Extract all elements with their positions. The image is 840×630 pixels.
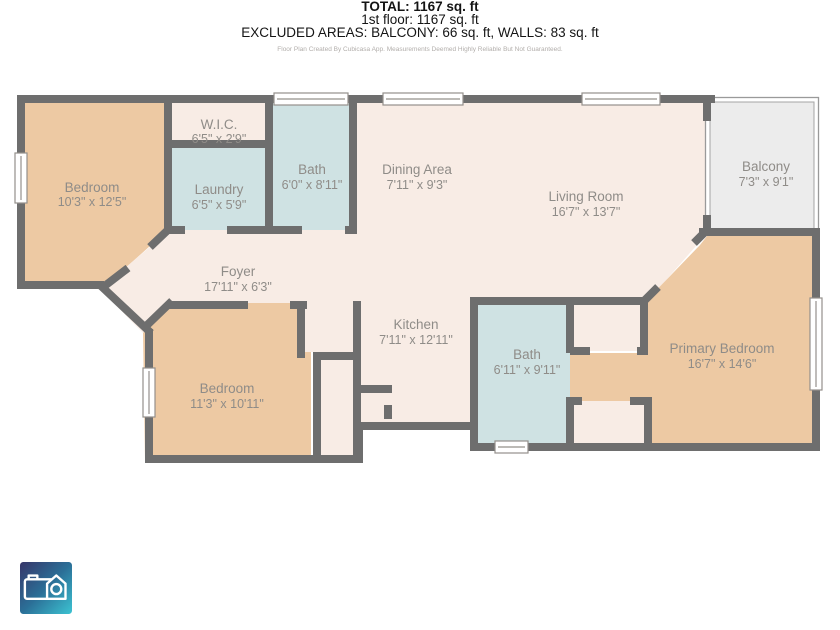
room-label-bedroom-1: Bedroom 10'3" x 12'5" — [58, 180, 127, 209]
window — [495, 441, 528, 453]
area-summary: TOTAL: 1167 sq. ft 1st floor: 1167 sq. f… — [0, 0, 840, 54]
room-name: Bath — [513, 347, 541, 362]
room-name: Living Room — [548, 189, 623, 204]
room-name: Dining Area — [382, 162, 452, 177]
room-dimensions: 11'3" x 10'11" — [190, 397, 264, 411]
window — [143, 368, 155, 417]
room-name: Balcony — [742, 159, 790, 174]
room-dimensions: 16'7" x 13'7" — [552, 205, 621, 219]
window — [810, 298, 822, 390]
room-dimensions: 7'3" x 9'1" — [739, 175, 794, 189]
closet-a-area — [301, 301, 353, 352]
room-dimensions: 6'11" x 9'11" — [494, 363, 561, 377]
room-dimensions: 7'11" x 12'11" — [379, 333, 453, 347]
room-dimensions: 6'5" x 2'9" — [192, 132, 247, 146]
room-name: Primary Bedroom — [669, 341, 774, 356]
room-name: W.I.C. — [201, 117, 238, 132]
room-fills — [21, 95, 819, 461]
window — [582, 93, 660, 105]
room-dimensions: 10'3" x 12'5" — [58, 195, 127, 209]
room-dimensions: 16'7" x 14'6" — [688, 357, 757, 371]
room-name: Bedroom — [200, 381, 255, 396]
cubicasa-logo — [20, 562, 72, 614]
closet-c-area — [570, 301, 644, 351]
window — [383, 93, 463, 105]
room-dimensions: 6'0" x 8'11" — [282, 178, 343, 192]
room-dimensions: 17'11" x 6'3" — [204, 280, 272, 294]
room-name: Bath — [298, 162, 326, 177]
floor-plan-canvas: Bedroom 10'3" x 12'5" W.I.C. 6'5" x 2'9"… — [0, 0, 840, 520]
room-name: Laundry — [195, 182, 244, 197]
excluded-area-text: EXCLUDED AREAS: BALCONY: 66 sq. ft, WALL… — [0, 26, 840, 39]
room-name: Foyer — [221, 264, 256, 279]
window — [274, 93, 348, 105]
disclaimer-text: Floor Plan Created By Cubicasa App. Meas… — [0, 46, 840, 54]
camera-house-icon — [20, 562, 72, 614]
room-name: Kitchen — [393, 317, 438, 332]
room-dimensions: 7'11" x 9'3" — [387, 178, 448, 192]
room-dimensions: 6'5" x 5'9" — [192, 198, 247, 212]
room-name: Bedroom — [65, 180, 120, 195]
closet-d-area — [570, 401, 648, 447]
window — [15, 153, 27, 203]
closet-b-area — [317, 356, 357, 461]
primary-hall-area — [566, 353, 648, 401]
